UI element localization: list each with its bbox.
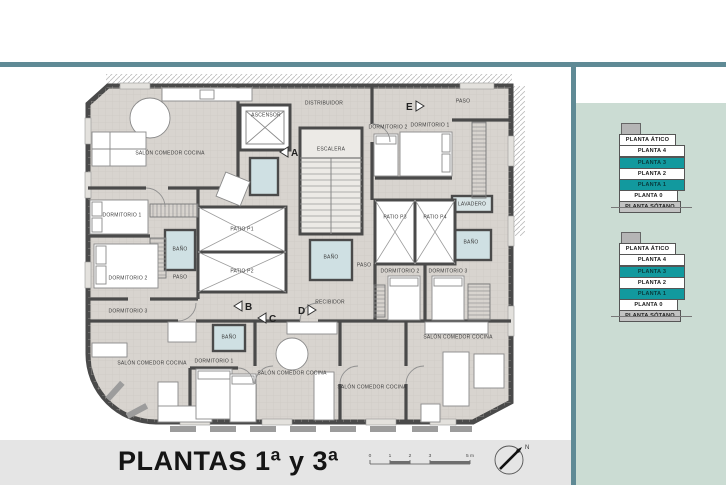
floor-plan-drawing: A B C D E	[0, 66, 572, 440]
roof-bulkhead	[621, 232, 641, 244]
roof-bulkhead	[621, 123, 641, 135]
room-label: DORMITORIO 3	[429, 269, 468, 275]
legend-floor-row: PLANTA 4	[619, 254, 685, 266]
room-label: BAÑO	[324, 255, 339, 261]
room-label: SALÓN COMEDOR COCINA	[337, 385, 406, 391]
room-label: DORMITORIO 1	[195, 359, 234, 365]
room-label: DORMITORIO 1	[103, 213, 142, 219]
svg-text:A: A	[291, 148, 298, 159]
svg-text:5 m: 5 m	[466, 453, 474, 459]
legend-floor-row: PLANTA ÁTICO	[619, 243, 676, 255]
svg-text:3: 3	[429, 453, 432, 459]
svg-text:1: 1	[389, 453, 392, 459]
room-label: DORMITORIO 2	[381, 269, 420, 275]
room-label: PATIO P2	[230, 269, 253, 275]
title-strip: PLANTAS 1ª y 3ª 0 1 2 3 5 m N	[0, 440, 571, 485]
ground-line	[611, 316, 692, 317]
svg-text:D: D	[298, 306, 305, 317]
room-label: ESCALERA	[317, 147, 345, 153]
room-label: BAÑO	[464, 240, 479, 246]
room-label: DISTRIBUIDOR	[305, 101, 343, 107]
room-label: SALÓN COMEDOR COCINA	[257, 371, 326, 377]
room-label: DORMITORIO 3	[109, 309, 148, 315]
legend-floor-row: PLANTA 0	[619, 190, 678, 202]
building-section-diagram: PLANTA ÁTICO PLANTA 4 PLANTA 3 PLANTA 2 …	[619, 123, 685, 213]
staircase	[300, 128, 362, 234]
room-label: PATIO P1	[230, 227, 253, 233]
legend-floor-row: PLANTA 2	[619, 277, 685, 289]
ground-line	[611, 207, 692, 208]
room-label: BAÑO	[173, 247, 188, 253]
room-label: DORMITORIO 2	[109, 276, 148, 282]
legend-floor-row: PLANTA 0	[619, 299, 678, 311]
room-label: SALÓN COMEDOR COCINA	[117, 361, 186, 367]
legend-floor-row: PLANTA 1	[619, 288, 685, 300]
legend-floor-row: PLANTA 3	[619, 266, 685, 278]
room-label: DORMITORIO 1	[411, 123, 450, 129]
legend-floor-row: PLANTA 2	[619, 168, 685, 180]
svg-text:B: B	[245, 302, 252, 313]
room-label: RECIBIDOR	[315, 300, 345, 306]
room-label: PATIO P4	[423, 215, 446, 221]
room-label: BAÑO	[222, 335, 237, 341]
floor-plan-sheet: A B C D E SAL	[0, 0, 726, 485]
floor-plan: A B C D E SAL	[0, 66, 572, 440]
room-label: DORMITORIO 2	[369, 125, 408, 131]
room-label: LAVADERO	[458, 202, 486, 208]
legend-floor-row: PLANTA 1	[619, 179, 685, 191]
room-label: PASO	[357, 263, 371, 269]
svg-text:E: E	[406, 102, 413, 113]
building-section-diagram: PLANTA ÁTICO PLANTA 4 PLANTA 3 PLANTA 2 …	[619, 232, 685, 322]
room-label: PATIO P3	[383, 215, 406, 221]
legend-panel: PLANTA ÁTICO PLANTA 4 PLANTA 3 PLANTA 2 …	[576, 103, 726, 485]
svg-text:2: 2	[409, 453, 412, 459]
room-label: SALÓN COMEDOR COCINA	[135, 151, 204, 157]
legend-floor-row: PLANTA ÁTICO	[619, 134, 676, 146]
svg-text:C: C	[269, 314, 276, 325]
page-title: PLANTAS 1ª y 3ª	[118, 446, 339, 477]
room-label: ASCENSOR	[251, 113, 281, 119]
legend-floor-row: PLANTA 4	[619, 145, 685, 157]
scale-bar: 0 1 2 3 5 m	[366, 450, 482, 472]
room-label: SALÓN COMEDOR COCINA	[423, 335, 492, 341]
north-compass: N	[489, 436, 537, 484]
room-label: PASO	[456, 99, 470, 105]
svg-text:N: N	[525, 445, 529, 451]
legend-floor-row: PLANTA 3	[619, 157, 685, 169]
room-label: PASO	[173, 275, 187, 281]
svg-text:0: 0	[369, 453, 372, 459]
